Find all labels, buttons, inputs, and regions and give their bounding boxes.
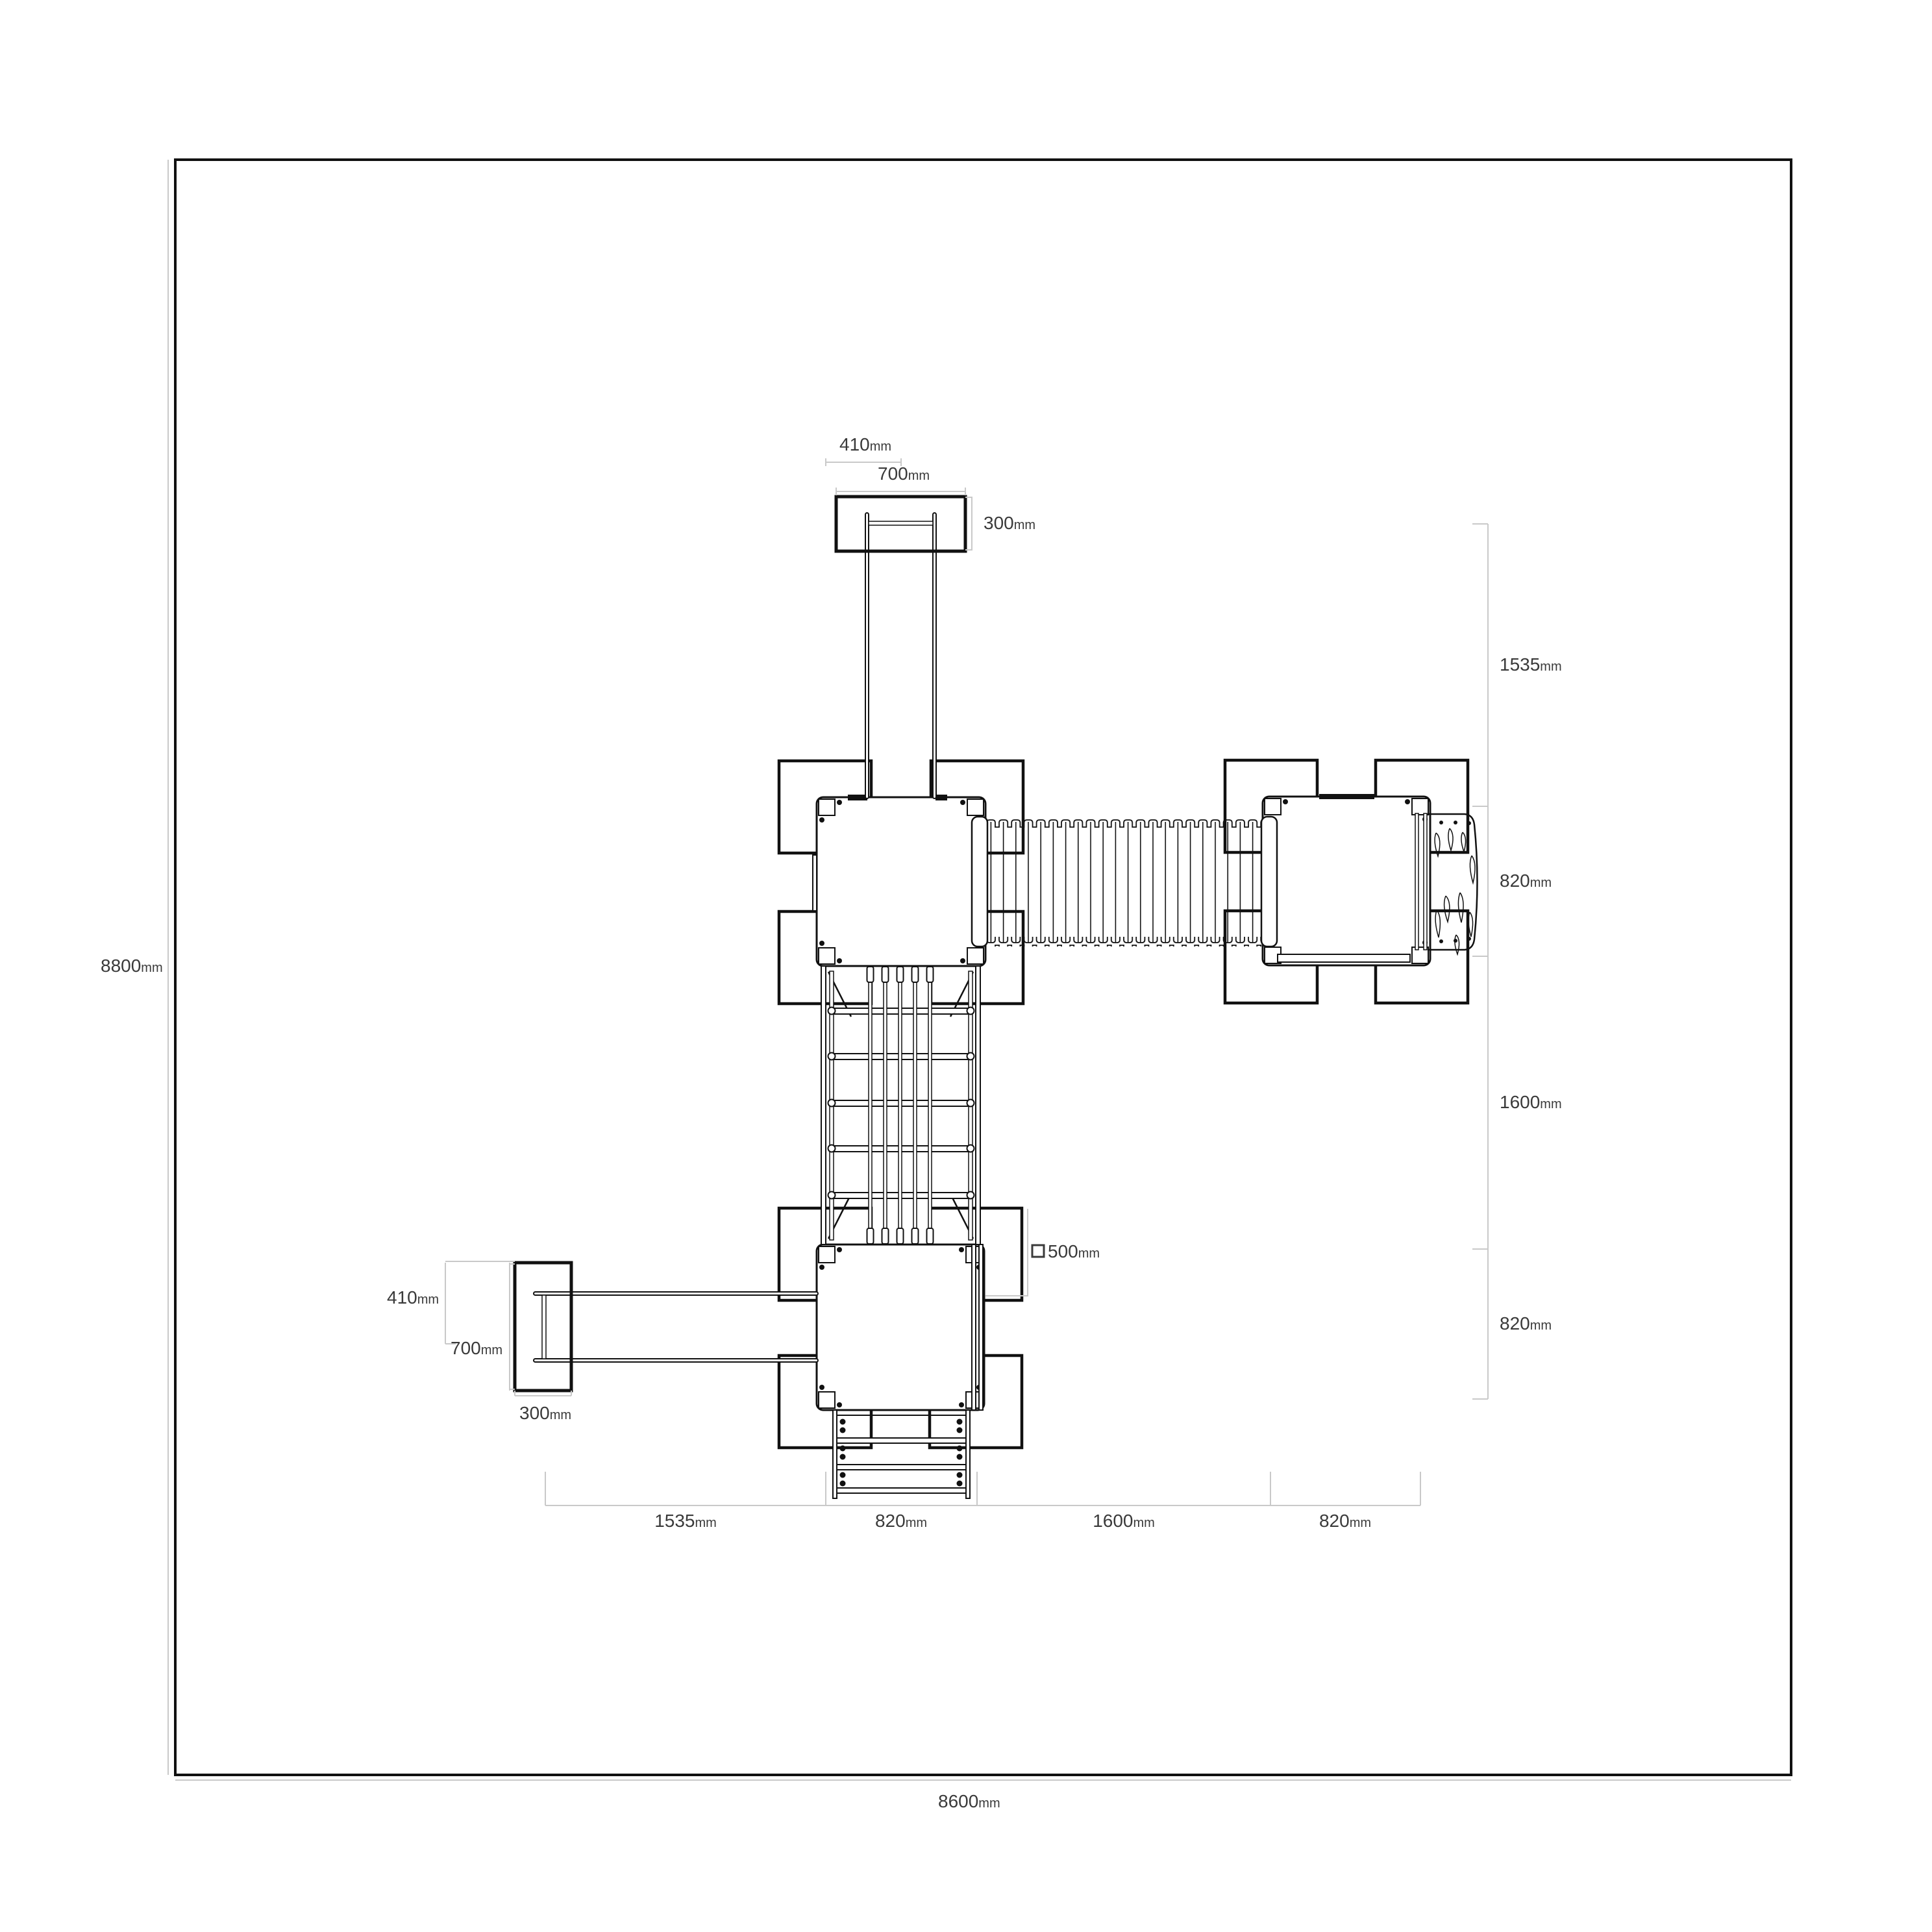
slide-end bbox=[515, 1263, 571, 1391]
square-section-icon bbox=[1032, 1245, 1044, 1257]
net-climber bbox=[821, 966, 980, 1245]
dim-bottom-1600: 1600mm bbox=[1093, 1511, 1155, 1531]
left-slide bbox=[515, 1263, 818, 1391]
guard-bar bbox=[1278, 954, 1410, 962]
dim-bottom-820b: 820mm bbox=[1319, 1511, 1371, 1531]
post-section-label: 500mm bbox=[985, 1209, 1100, 1296]
guard-bar bbox=[813, 855, 817, 911]
right-dimension-chain: 1535mm 820mm 1600mm 820mm bbox=[1472, 524, 1562, 1399]
dim-right-820: 820mm bbox=[1500, 871, 1552, 891]
slide-rail bbox=[933, 513, 936, 799]
dim-left-slide-410: 410mm bbox=[387, 1287, 439, 1307]
dim-left-slide-300: 300mm bbox=[519, 1403, 571, 1423]
bottom-dimension-chain: 1535mm 820mm 1600mm 820mm bbox=[545, 1472, 1420, 1531]
slide-rail bbox=[534, 1359, 818, 1362]
slide-end bbox=[836, 497, 965, 551]
guard-bar bbox=[972, 1245, 976, 1410]
ladder bbox=[833, 1410, 970, 1498]
ladder-rung bbox=[837, 1488, 966, 1493]
dim-post-500: 500mm bbox=[1048, 1241, 1100, 1261]
side-rail bbox=[976, 966, 980, 1245]
ladder-rung bbox=[837, 1465, 966, 1470]
tunnel-collar bbox=[1261, 817, 1277, 947]
dim-overall-width: 8600mm bbox=[938, 1791, 1000, 1811]
safety-area-border bbox=[175, 160, 1791, 1775]
tunnel-collar bbox=[972, 817, 987, 947]
dim-left-slide-700: 700mm bbox=[451, 1338, 502, 1358]
ladder-rung bbox=[837, 1438, 966, 1443]
deck bbox=[1263, 797, 1430, 965]
dim-right-820b: 820mm bbox=[1500, 1313, 1552, 1333]
deck bbox=[817, 797, 985, 966]
dim-top-slide-300: 300mm bbox=[984, 513, 1035, 533]
dim-top-slide-700: 700mm bbox=[878, 464, 930, 484]
slide-rail bbox=[534, 1292, 818, 1295]
dim-right-1600: 1600mm bbox=[1500, 1092, 1562, 1112]
ladder-rail bbox=[966, 1410, 970, 1498]
guard-bar bbox=[979, 1245, 983, 1410]
side-rail bbox=[821, 966, 826, 1245]
deck bbox=[817, 1245, 984, 1410]
tunnel-ribs bbox=[987, 822, 1261, 943]
dim-top-slide-410: 410mm bbox=[839, 434, 891, 454]
top-slide bbox=[836, 497, 965, 799]
plan-drawing: 410mm 700mm 300mm 410mm 700mm 300mm 500m… bbox=[0, 0, 1932, 1932]
slide-rail bbox=[865, 513, 869, 799]
crawl-tunnel bbox=[972, 817, 1277, 947]
dim-right-1535: 1535mm bbox=[1500, 654, 1562, 675]
tunnel-bottom-corrugation bbox=[987, 937, 1261, 947]
guard-bar bbox=[1319, 794, 1374, 799]
dim-overall-height: 8800mm bbox=[101, 956, 163, 976]
dim-bottom-820: 820mm bbox=[875, 1511, 927, 1531]
tunnel-top-corrugation bbox=[987, 819, 1261, 829]
dim-bottom-1535: 1535mm bbox=[654, 1511, 717, 1531]
guard-bar bbox=[848, 795, 867, 800]
ladder-rail bbox=[833, 1410, 837, 1498]
guard-bar bbox=[935, 795, 947, 800]
